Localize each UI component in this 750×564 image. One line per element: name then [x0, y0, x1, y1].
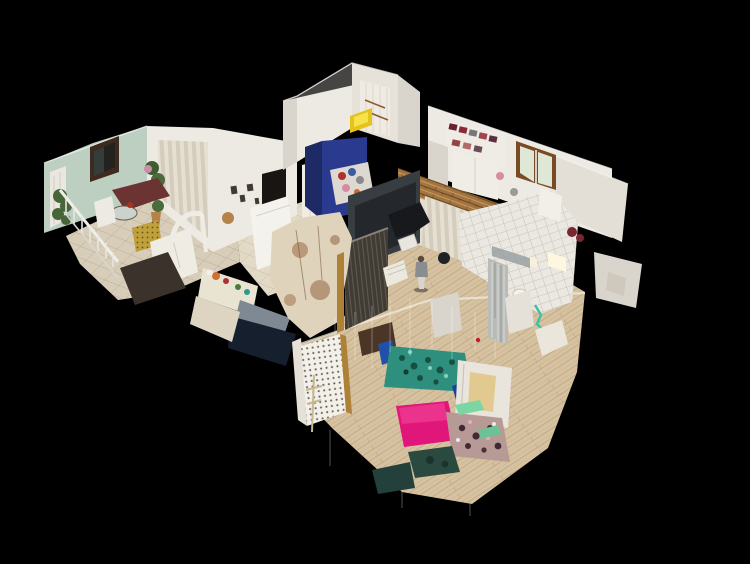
closet-window-glass-right — [538, 152, 552, 187]
red-marker-dot — [476, 338, 480, 342]
gold-door-frame — [337, 252, 344, 333]
plant-flower — [144, 165, 152, 173]
foil-shower-door — [488, 258, 508, 345]
bedroom-white-pillar — [430, 292, 462, 338]
person-legs — [418, 277, 425, 289]
hanging-bag — [222, 212, 234, 224]
teal-appliance — [244, 289, 250, 295]
dollhouse-canvas[interactable] — [0, 0, 750, 564]
person-head — [418, 256, 424, 262]
person-torso — [415, 262, 428, 277]
office-chair — [438, 252, 450, 264]
mirror-reflection — [94, 147, 104, 176]
flower-centerpiece — [127, 202, 133, 208]
viewer-stage — [0, 0, 750, 564]
lattice-dots — [301, 334, 346, 426]
top-wall-sliver — [283, 96, 297, 170]
